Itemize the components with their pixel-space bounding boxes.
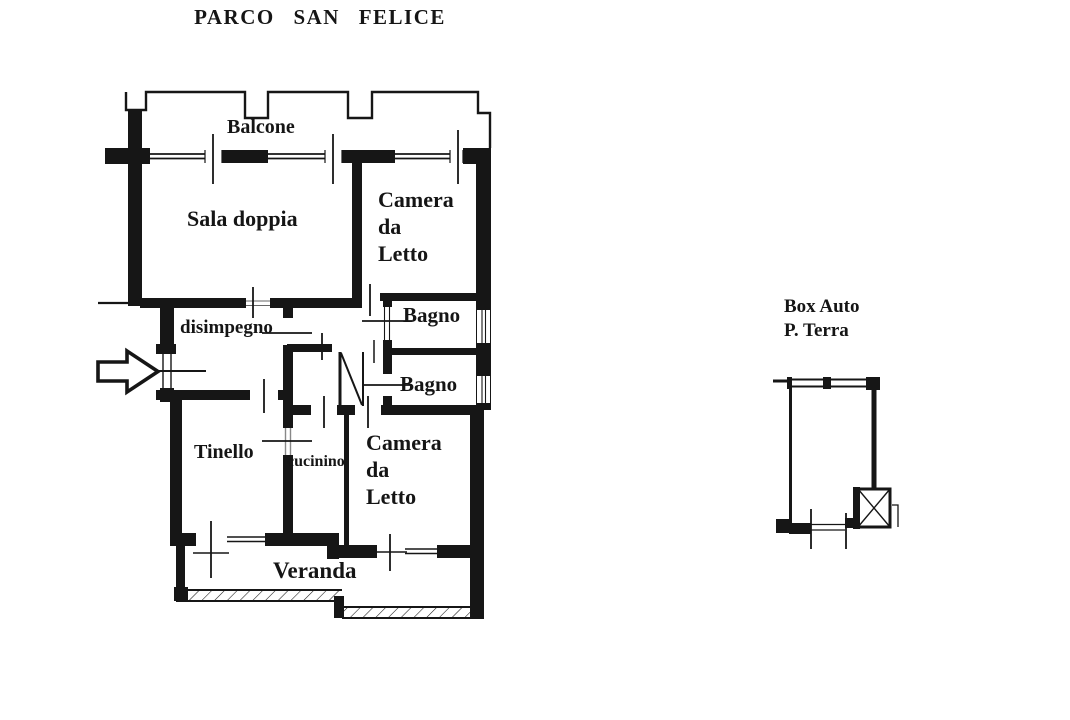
balcony-parapet-outline (126, 92, 490, 148)
camera-top-left-wall (352, 162, 362, 302)
room-label-line: da (366, 456, 442, 483)
room-label-disimpegno: disimpegno (180, 317, 273, 339)
room-label-veranda: Veranda (273, 558, 357, 584)
room-label-camera-da-letto-top: Camera da Letto (378, 186, 454, 267)
right-exterior-wall (470, 148, 491, 617)
left-exterior-wall (128, 150, 142, 306)
room-label-camera-da-letto-bottom: Camera da Letto (366, 429, 442, 510)
cucinino-camera-divider (344, 415, 349, 546)
middle-spine-wall (262, 306, 312, 535)
room-label-line: Camera (366, 429, 442, 456)
room-label-line: Camera (378, 186, 454, 213)
balcony-left-pier (128, 110, 142, 152)
bagno-top-wall (380, 293, 490, 301)
tinello-walls (170, 398, 339, 578)
camera-bottom-wall (337, 534, 483, 571)
room-label-tinello: Tinello (194, 441, 254, 464)
floor-plan-page: PARCO SAN FELICE Balcone Sala doppia Cam… (0, 0, 1070, 720)
garage-label: Box Auto P. Terra (784, 295, 860, 343)
garage-plan (773, 377, 898, 549)
room-label-line: Letto (366, 483, 442, 510)
room-label-line: da (378, 213, 454, 240)
plan-title: PARCO SAN FELICE (150, 5, 490, 29)
room-label-balcone: Balcone (227, 116, 295, 139)
entrance-arrow-icon (98, 351, 158, 392)
room-label-cucinino: cucinino (287, 453, 345, 471)
corridor-walls (287, 333, 332, 360)
shaft-icon (853, 487, 898, 529)
room-label-sala-doppia: Sala doppia (187, 206, 298, 231)
garage-label-line: Box Auto (784, 295, 860, 319)
floor-plan-drawing (0, 0, 1070, 720)
top-exterior-wall (105, 130, 491, 184)
garage-label-line: P. Terra (784, 319, 860, 343)
room-label-bagno-top: Bagno (403, 303, 460, 327)
room-label-line: Letto (378, 240, 454, 267)
room-label-bagno-bottom: Bagno (400, 372, 457, 396)
